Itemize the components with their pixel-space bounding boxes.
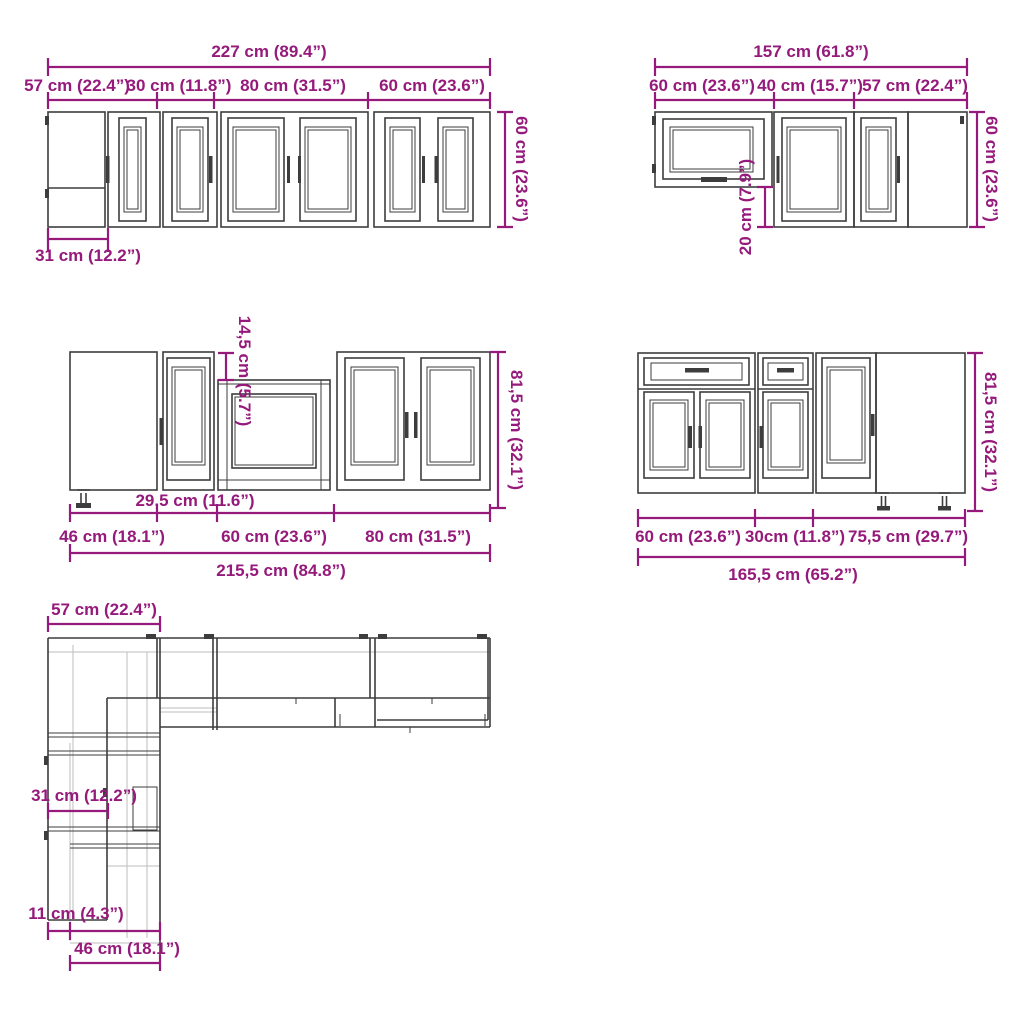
foot-base: [938, 506, 951, 511]
door-handle: [298, 156, 301, 183]
hinge-mark: [652, 164, 656, 173]
hinge-mark: [45, 189, 49, 198]
mount-bracket: [146, 634, 156, 639]
dim-wall-run-60: 60 cm (23.6”): [379, 76, 485, 95]
drawer-handle: [685, 368, 709, 373]
dim-base-corner-overall: 165,5 cm (65.2”): [728, 565, 857, 584]
mount-bracket: [477, 634, 487, 639]
dim-wall-corner-57: 57 cm (22.4”): [862, 76, 968, 95]
dim-base-corner-30: 30cm (11.8”): [745, 527, 845, 546]
drawer-handle: [777, 368, 794, 373]
mount-bracket: [378, 634, 387, 639]
hinge-mark: [652, 116, 656, 125]
foot-base: [877, 506, 890, 511]
kitchen-dimension-diagram: 227 cm (89.4”) 57 cm (22.4”) 30 cm (11.8…: [0, 0, 1024, 1024]
dim-wall-run-height: 60 cm (23.6”): [512, 116, 531, 222]
dim-plan-corner-width: 57 cm (22.4”): [51, 600, 157, 619]
dim-wall-run-corner: 57 cm (22.4”): [24, 76, 130, 95]
dim-base-run-overall: 215,5 cm (84.8”): [216, 561, 345, 580]
mount-bracket: [359, 634, 368, 639]
door-handle: [777, 156, 780, 183]
door-handle: [699, 426, 703, 448]
dim-wall-run-30: 30 cm (11.8”): [127, 76, 232, 95]
dim-wall-corner-40: 40 cm (15.7”): [757, 76, 863, 95]
door-handle: [435, 156, 438, 183]
dim-base-run-80: 80 cm (31.5”): [365, 527, 471, 546]
dim-base-corner-75-5: 75,5 cm (29.7”): [848, 527, 968, 546]
dim-base-corner-height: 81,5 cm (32.1”): [981, 372, 1000, 492]
dim-base-run-29-5: 29,5 cm (11.6”): [135, 491, 254, 510]
hinge-mark: [960, 116, 964, 124]
dim-base-run-height: 81,5 cm (32.1”): [507, 370, 526, 490]
dim-base-run-corner: 46 cm (18.1”): [59, 527, 165, 546]
door-handle: [689, 426, 693, 448]
dim-wall-run-80: 80 cm (31.5”): [240, 76, 346, 95]
dim-wall-corner-flip-clearance: 20 cm (7.9”): [736, 159, 755, 255]
door-handle: [209, 156, 213, 183]
hinge-mark: [44, 756, 48, 765]
door-handle: [405, 412, 409, 438]
dim-plan-base-offset: 11 cm (4.3”): [28, 904, 123, 923]
door-handle: [760, 426, 764, 448]
door-handle: [897, 156, 900, 183]
door-handle: [160, 418, 164, 445]
foot-base: [76, 503, 91, 508]
diagram-canvas: 227 cm (89.4”) 57 cm (22.4”) 30 cm (11.8…: [0, 0, 1024, 1024]
mount-bracket: [204, 634, 214, 639]
dim-plan-wall-depth: 31 cm (12.2”): [31, 786, 137, 805]
dim-base-run-60: 60 cm (23.6”): [221, 527, 327, 546]
dim-base-corner-60: 60 cm (23.6”): [635, 527, 741, 546]
hinge-mark: [45, 116, 49, 125]
door-handle: [287, 156, 290, 183]
dim-base-run-recess: 14,5 cm (5.7”): [235, 316, 254, 427]
door-handle: [871, 414, 875, 436]
door-handle: [414, 412, 418, 438]
dim-wall-corner-overall: 157 cm (61.8”): [753, 42, 868, 61]
dim-wall-run-overall: 227 cm (89.4”): [211, 42, 326, 61]
door-handle: [422, 156, 425, 183]
dim-wall-corner-height: 60 cm (23.6”): [982, 116, 1001, 222]
dim-plan-base-depth: 46 cm (18.1”): [74, 939, 180, 958]
dim-wall-corner-60: 60 cm (23.6”): [649, 76, 755, 95]
dim-wall-run-corner-depth: 31 cm (12.2”): [35, 246, 141, 265]
hinge-mark: [44, 831, 48, 840]
flip-door-handle: [701, 177, 727, 182]
door-handle: [106, 156, 110, 183]
